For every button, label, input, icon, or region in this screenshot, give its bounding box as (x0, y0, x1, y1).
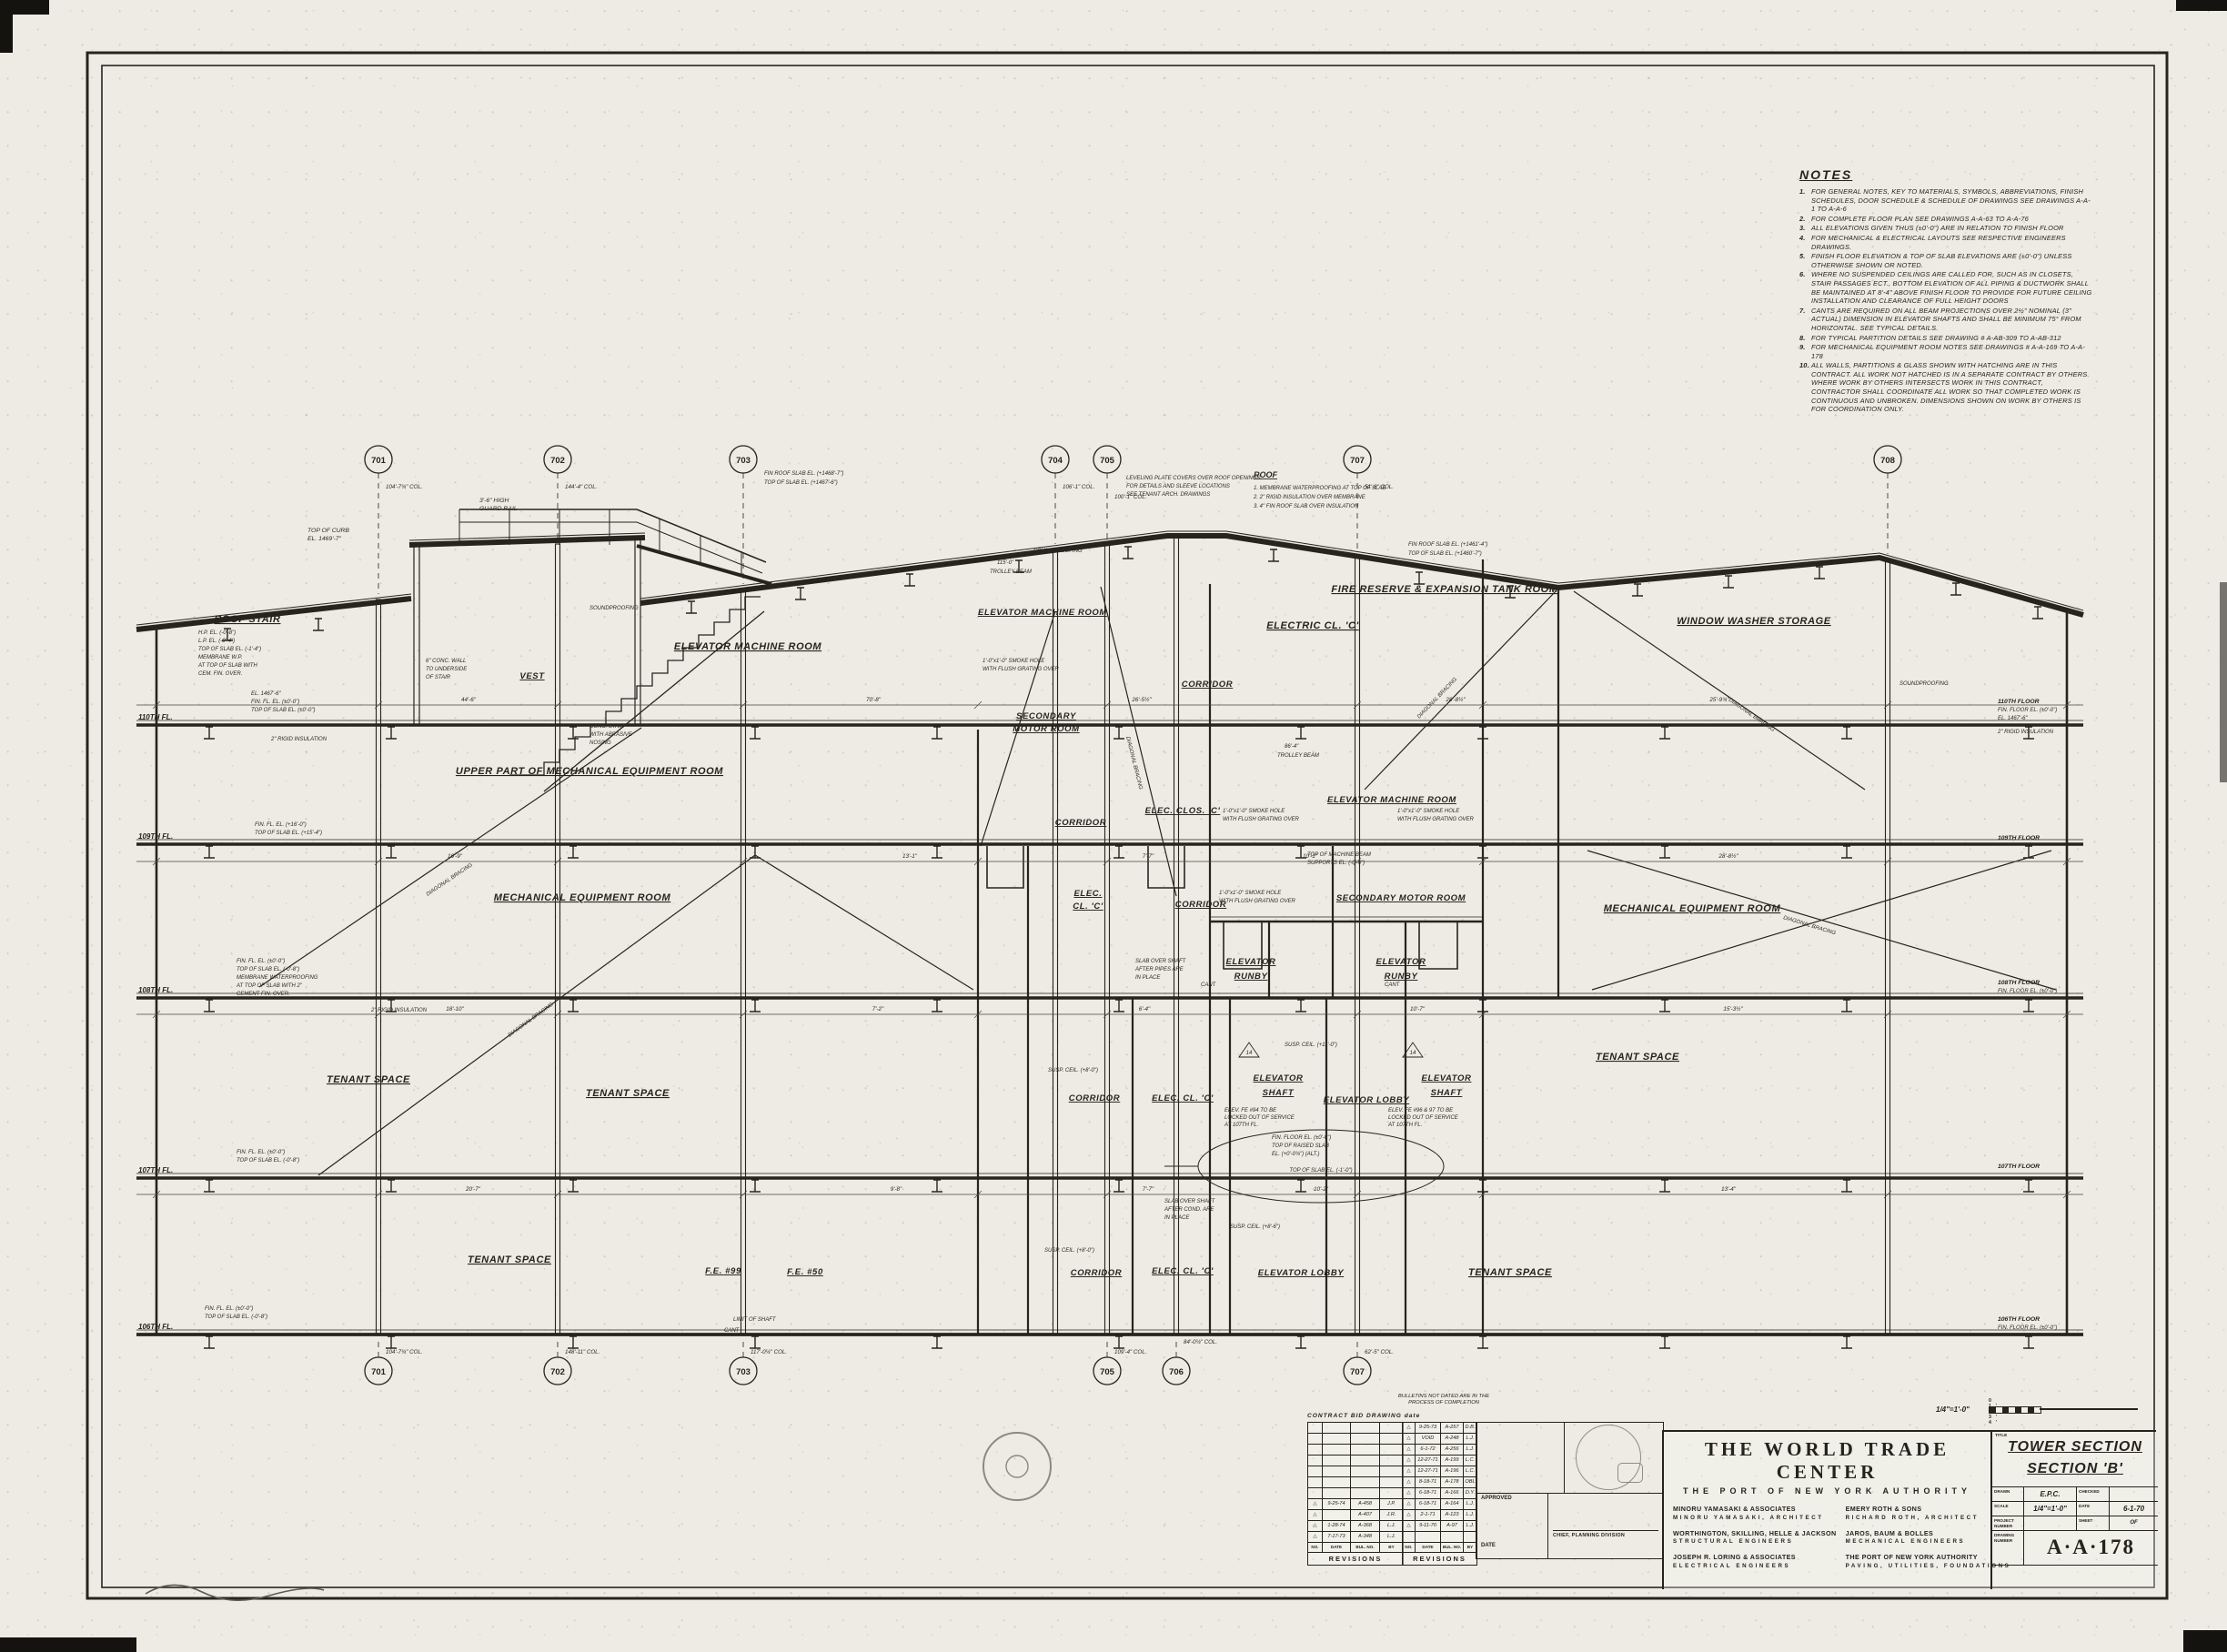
ann-curb1: TOP OF CURB (307, 528, 349, 534)
room-tenant-1: TENANT SPACE (327, 1074, 410, 1085)
ann-lock2c: AT 107TH FL. (1387, 1123, 1422, 1128)
rev-bul: A-458 (1351, 1499, 1380, 1509)
dim-c4-3: 10'-2" (1314, 1186, 1329, 1193)
dim-c2-4: 28'-8½" (1718, 852, 1738, 860)
ann-f109-tos: TOP OF SLAB EL. (+15'-4") (255, 831, 322, 836)
rev-bul: A-248 (1441, 1434, 1464, 1444)
credit-jaros: JAROS, BAUM & BOLLESMECHANICAL ENGINEERS (1846, 1529, 2011, 1546)
rev-by: L.J. (1464, 1510, 1476, 1520)
col-dim-703-bottom: 117'-0¼" COL. (751, 1349, 787, 1355)
revisions-area: BULLETINS NOT DATED ARE IN THE PROCESS O… (1307, 1383, 1662, 1588)
sheet-of-label: OF (2110, 1516, 2158, 1530)
date-value: 6-1-70 (2110, 1502, 2158, 1516)
ann-sound-1: SOUNDPROOFING (589, 606, 639, 611)
title-block-left: THE WORLD TRADE CENTER THE PORT OF NEW Y… (1664, 1432, 1990, 1589)
ann-roof-n1: 1. MEMBRANE WATERPROOFING AT TOP OF SLAB (1254, 486, 1386, 491)
grid-703-bottom: 703 (736, 1367, 751, 1377)
note-num: 2. (1799, 215, 1811, 224)
drawn-label: DRAWN (1992, 1487, 2023, 1495)
ann-smoke3a: 1'-0"x1'-0" SMOKE HOLE (1219, 891, 1282, 896)
firm-role: STRUCTURAL ENGINEERS (1673, 1538, 1837, 1545)
rev-bul: A-97 (1441, 1521, 1464, 1531)
note-item: 8.FOR TYPICAL PARTITION DETAILS SEE DRAW… (1799, 334, 2092, 343)
scale-field-label: SCALE (1992, 1502, 2023, 1509)
floor-109-left: 109TH FL. (138, 832, 173, 841)
notes-block: NOTES 1.FOR GENERAL NOTES, KEY TO MATERI… (1799, 167, 2092, 415)
dim-c1-1: 70'-8" (866, 697, 882, 703)
note-num: 9. (1799, 343, 1811, 360)
room-elec-clos: ELEC. CLOS. 'C' (1145, 806, 1221, 816)
revision-row: △A-407J.R. (1308, 1510, 1403, 1521)
rev-date: VOID (1416, 1434, 1441, 1444)
col-by: BY (1380, 1543, 1403, 1552)
title-block-right: TITLE TOWER SECTION SECTION 'B' DRAWN E.… (1990, 1432, 2158, 1589)
grid-702-bottom: 702 (550, 1367, 565, 1377)
rev-delta: △ (1308, 1499, 1323, 1509)
room-elev-machine-core: ELEVATOR MACHINE ROOM (978, 608, 1107, 618)
room-window-washer: WINDOW WASHER STORAGE (1677, 616, 1831, 627)
room-elev-machine-left: ELEVATOR MACHINE ROOM (674, 641, 822, 652)
note-text: ALL WALLS, PARTITIONS & GLASS SHOWN WITH… (1811, 361, 2092, 414)
rev-by: OBL (1464, 1477, 1476, 1487)
ann-sos1b: AFTER PIPES ARE (1134, 967, 1184, 972)
firm-role: PAVING, UTILITIES, FOUNDATIONS (1846, 1563, 2011, 1569)
ann-sos1c: IN PLACE (1135, 975, 1161, 981)
bulletins-note: BULLETINS NOT DATED ARE IN THE PROCESS O… (1344, 1394, 1544, 1406)
ann-sound-2: SOUNDPROOFING (1033, 549, 1083, 554)
title-block: THE WORLD TRADE CENTER THE PORT OF NEW Y… (1662, 1430, 2156, 1589)
firm-name: THE PORT OF NEW YORK AUTHORITY (1846, 1553, 2011, 1561)
ann-frsl2: TOP OF SLAB EL. (+1467'-6") (764, 480, 838, 486)
rev-by: L.J. (1464, 1434, 1476, 1444)
dim-c1-3: 28'-8½" (1445, 696, 1466, 703)
ann-guard1: 3'-6" HIGH (479, 498, 509, 504)
grid-705-bottom: 705 (1100, 1367, 1115, 1377)
note-text: WHERE NO SUSPENDED CEILINGS ARE CALLED F… (1811, 270, 2092, 305)
revision-row: △6-18-71A-166D.Y. (1403, 1488, 1476, 1499)
col-dim-706-bottom: 84'-0¼" COL. (1184, 1339, 1217, 1345)
room-corridor-m1: CORRIDOR (1055, 818, 1107, 828)
ann-oval: TOP OF SLAB EL. (-1'-0") (1289, 1168, 1352, 1174)
ann-f108-memb3: CEMENT FIN. OVER. (237, 992, 290, 997)
ann-frsr1: FIN ROOF SLAB EL. (+1461'-4") (1408, 542, 1487, 548)
title-label: TITLE (1995, 1434, 2007, 1438)
rev-delta: △ (1308, 1521, 1323, 1531)
ann-cant-2: CANT (1385, 982, 1401, 988)
revision-row: △9-11-70A-97L.J. (1403, 1521, 1476, 1532)
revision-row: △8-18-71A-178OBL (1403, 1477, 1476, 1488)
ann-f108-ffe: FIN. FL. EL. (±0'-0") (237, 959, 285, 964)
floor-108-right: 108TH FLOOR (1998, 980, 2040, 986)
dim-c3-1: 7'-2" (872, 1006, 884, 1012)
consultant-credits: MINORU YAMASAKI & ASSOCIATESMINORU YAMAS… (1664, 1496, 1990, 1569)
dim-c4-0: 20'-7" (465, 1186, 481, 1193)
col-no: NO. (1308, 1543, 1323, 1552)
ann-smoke2a: 1'-0"x1'-0" SMOKE HOLE (1397, 809, 1460, 814)
ann-smoke1a: 1'-0"x1'-0" SMOKE HOLE (1223, 809, 1285, 814)
ann-roof-n3: 3. 4" FIN ROOF SLAB OVER INSULATION (1254, 504, 1359, 509)
note-num: 10. (1799, 361, 1811, 414)
floor-110-left: 110TH FL. (138, 713, 173, 721)
drawing-no-label: DRAWING NUMBER (1992, 1531, 2023, 1544)
dim-c3-3: 10'-7" (1410, 1006, 1426, 1012)
rev-delta: △ (1403, 1477, 1416, 1487)
ann-smoke2b: WITH FLUSH GRATING OVER (1397, 817, 1475, 822)
room-roof-stair: ROOF STAIR (214, 614, 280, 625)
rev-delta: △ (1308, 1532, 1323, 1542)
rev-date: 1-28-74 (1323, 1521, 1351, 1531)
revision-row: △7-17-73A-348L.J. (1308, 1532, 1403, 1543)
scale-bar-icon (1989, 1406, 2041, 1414)
rev-delta: △ (1403, 1445, 1416, 1455)
rev-by: L.J. (1464, 1521, 1476, 1531)
room-tenant-2: TENANT SPACE (586, 1088, 670, 1099)
rev-bul: A-178 (1441, 1477, 1464, 1487)
rev-date: 6-18-71 (1416, 1499, 1441, 1509)
firm-name: JAROS, BAUM & BOLLES (1846, 1529, 2011, 1537)
ann-lev1: LEVELING PLATE COVERS OVER ROOF OPENINGS (1126, 476, 1260, 481)
room-elev-lobby-2: ELEVATOR LOBBY (1258, 1268, 1345, 1278)
col-dim-702-top: 144'-4" COL. (565, 484, 597, 490)
scan-artifact (2176, 0, 2227, 11)
rev-delta: △ (1403, 1456, 1416, 1466)
dim-c3-4: 15'-3½" (1723, 1005, 1743, 1012)
rev-bul: A-123 (1441, 1510, 1464, 1520)
room-elec-cl-mid: ELEC. CL. 'C' (1152, 1093, 1214, 1103)
note-num: 4. (1799, 234, 1811, 251)
ann-smoke1b: WITH FLUSH GRATING OVER (1223, 817, 1300, 822)
room-runby2-a: ELEVATOR (1376, 957, 1426, 967)
ann-lock1a: ELEV. FE #94 TO BE (1224, 1108, 1277, 1113)
ann-diag-1: DIAGONAL BRACING (426, 862, 474, 898)
grid-707-bottom: 707 (1350, 1367, 1365, 1377)
ann-smoke3b: WITH FLUSH GRATING OVER (1219, 899, 1296, 904)
grid-701-top: 701 (371, 456, 387, 466)
firm-role: RICHARD ROTH, ARCHITECT (1846, 1515, 2011, 1521)
grid-707-top: 707 (1350, 456, 1365, 466)
sheet-label: SHEET (2077, 1516, 2109, 1524)
note-item: 10.ALL WALLS, PARTITIONS & GLASS SHOWN W… (1799, 361, 2092, 414)
revisions-table-left: △9-25-74A-458J.P. △A-407J.R. △1-28-74A-3… (1307, 1422, 1404, 1566)
drawing-number: A·A·178 (2024, 1531, 2158, 1565)
rev-bul: A-348 (1351, 1532, 1380, 1542)
ann-susp8a: SUSP. CEIL. (+8'-0") (1048, 1068, 1098, 1073)
rev-bul: A-196 (1441, 1466, 1464, 1476)
ann-sos2a: SLAB OVER SHAFT (1164, 1199, 1216, 1204)
rev-bul: A-407 (1351, 1510, 1380, 1520)
ann-smoke4a: 1'-0"x1'-0" SMOKE HOLE (982, 659, 1045, 664)
room-tenant-3: TENANT SPACE (1596, 1052, 1679, 1063)
rev-bul: A-164 (1441, 1499, 1464, 1509)
ann-lock1b: LOCKED OUT OF SERVICE (1224, 1115, 1295, 1121)
room-elec-short: ELEC. (1074, 889, 1103, 899)
rev-bul: A-257 (1441, 1423, 1464, 1433)
ann-diag-2: DIAGONAL BRACING (508, 1002, 555, 1038)
rev-bul: A-199 (1441, 1456, 1464, 1466)
drawn-value: E.P.C. (2024, 1487, 2076, 1501)
note-num: 1. (1799, 187, 1811, 214)
ann-susp86: SUSP. CEIL. (+8'-6") (1230, 1224, 1280, 1230)
grid-704-top: 704 (1048, 456, 1063, 466)
note-text: FOR MECHANICAL & ELECTRICAL LAYOUTS SEE … (1811, 234, 2092, 251)
floor-level-labels: 110TH FL. 109TH FL. 108TH FL. 107TH FL. … (138, 699, 2040, 1331)
dim-c4-2: 7'-7" (1143, 1186, 1154, 1193)
ann-sos2c: IN PLACE (1164, 1215, 1190, 1221)
blueprint-sheet: { "sheet": { "drawing_id": "A\u00b7A\u00… (0, 0, 2227, 1652)
date-label: DATE (2077, 1502, 2109, 1509)
note-num: 7. (1799, 307, 1811, 333)
firm-name: JOSEPH R. LORING & ASSOCIATES (1673, 1553, 1837, 1561)
ann-curb2: EL. 1469'-7" (307, 536, 342, 542)
room-secondary-motor-mid: SECONDARY MOTOR ROOM (1336, 893, 1466, 903)
col-dim-707-bottom: 62'-5" COL. (1365, 1349, 1394, 1355)
ann-cs3: NOSING (589, 740, 611, 746)
firm-role: MECHANICAL ENGINEERS (1846, 1538, 2011, 1545)
credit-ponya: THE PORT OF NEW YORK AUTHORITYPAVING, UT… (1846, 1553, 2011, 1569)
ann-cant-3: CANT (724, 1328, 741, 1334)
rev-date: 2-1-71 (1416, 1510, 1441, 1520)
note-item: 4.FOR MECHANICAL & ELECTRICAL LAYOUTS SE… (1799, 234, 2092, 251)
ann-r110-ffe: FIN. FLOOR EL. (±0'-0") (1998, 708, 2057, 713)
room-tenant-4: TENANT SPACE (468, 1254, 551, 1265)
ann-f110-tos: TOP OF SLAB EL. (±0'-0") (251, 708, 315, 713)
room-fe99: F.E. #99 (705, 1266, 741, 1276)
credit-yamasaki: MINORU YAMASAKI & ASSOCIATESMINORU YAMAS… (1673, 1505, 1837, 1521)
chief-planning-label: CHIEF, PLANNING DIVISION (1553, 1533, 1625, 1538)
revisions-col-headers: NO.DATEBUL. NO.BY (1403, 1543, 1476, 1553)
rev-delta: △ (1403, 1466, 1416, 1476)
notes-title: NOTES (1799, 167, 2092, 182)
dim-c2-2: 7'-7" (1143, 853, 1154, 860)
room-shaft1-b: SHAFT (1263, 1088, 1295, 1098)
col-dim-705-bottom: 109'-4" COL. (1114, 1349, 1146, 1355)
ann-mach2: SUPPORTS EL. (-0'-6") (1307, 861, 1365, 866)
dim-c3-0: 18'-10" (446, 1006, 464, 1012)
room-secondary-1: SECONDARY (1016, 711, 1077, 721)
note-num: 8. (1799, 334, 1811, 343)
note-text: CANTS ARE REQUIRED ON ALL BEAM PROJECTIO… (1811, 307, 2092, 333)
project-no-label: PROJECT NUMBER (1992, 1516, 2023, 1529)
rev-by: D.B. (1464, 1423, 1476, 1433)
ann-det14-1: 14 (1246, 1051, 1253, 1056)
room-vest: VEST (519, 671, 545, 681)
ann-f109-ffe: FIN. FL. EL. (+16'-0") (255, 822, 307, 828)
room-runby1-b: RUNBY (1234, 972, 1269, 982)
room-shaft2-b: SHAFT (1431, 1088, 1463, 1098)
ann-frsr2: TOP OF SLAB EL. (+1460'-7") (1408, 551, 1482, 557)
room-elev-lobby-1: ELEVATOR LOBBY (1324, 1095, 1410, 1105)
rev-date: 12-27-71 (1416, 1456, 1441, 1466)
room-motor-room-1: MOTOR ROOM (1013, 724, 1080, 734)
rev-delta: △ (1308, 1510, 1323, 1520)
rev-date (1323, 1510, 1351, 1520)
stamp-mark-icon (1617, 1463, 1643, 1483)
firm-name: EMERY ROTH & SONS (1846, 1505, 2011, 1513)
room-corridor-m3: CORRIDOR (1069, 1093, 1121, 1103)
rev-date: 9-25-74 (1323, 1499, 1351, 1509)
floor-107-right: 107TH FLOOR (1998, 1163, 2040, 1170)
approved-label: APPROVED (1481, 1496, 1512, 1501)
col-bul: BUL. NO. (1351, 1543, 1380, 1552)
ann-diag-3: DIAGONAL BRACING (1124, 736, 1143, 791)
ann-rs3: TOP OF SLAB EL. (-1'-4") (198, 647, 261, 652)
note-item: 5.FINISH FLOOR ELEVATION & TOP OF SLAB E… (1799, 252, 2092, 269)
note-num: 5. (1799, 252, 1811, 269)
rev-bul: A-368 (1351, 1521, 1380, 1531)
ann-rigid-3: 2" RIGID INSULATION (370, 1008, 428, 1013)
ann-rs6: CEM. FIN. OVER. (198, 671, 242, 677)
checked-label: CHECKED (2077, 1487, 2109, 1495)
room-corridor-b: CORRIDOR (1071, 1268, 1123, 1278)
ann-lock1c: AT 107TH FL. (1224, 1123, 1258, 1128)
rev-date: 9-25-73 (1416, 1423, 1441, 1433)
ann-r110-el: EL. 1467'-6" (1998, 716, 2029, 721)
note-text: FINISH FLOOR ELEVATION & TOP OF SLAB ELE… (1811, 252, 2092, 269)
dim-c4-1: 9'-8" (891, 1186, 902, 1193)
ann-rsl3: EL. (+0'-0¾") (ALT.) (1272, 1152, 1319, 1157)
col-no: NO. (1403, 1543, 1416, 1552)
note-text: ALL ELEVATIONS GIVEN THUS (±0'-0") ARE I… (1811, 224, 2092, 233)
ann-susp8b: SUSP. CEIL. (+8'-0") (1044, 1248, 1094, 1254)
col-date: DATE (1323, 1543, 1351, 1552)
revision-row: △6-18-71A-164L.J. (1403, 1499, 1476, 1510)
approval-date-label: DATE (1481, 1543, 1496, 1548)
ann-rigid-1: 2" RIGID INSULATION (270, 737, 327, 742)
ann-f107-ffe: FIN. FL. EL. (±0'-0") (237, 1150, 285, 1155)
ann-trolley1-dim: 115'-0" (997, 560, 1014, 566)
project-title: THE WORLD TRADE CENTER (1664, 1438, 1990, 1484)
revision-row: △6-1-72A-256L.J. (1403, 1445, 1476, 1456)
ann-lev2: FOR DETAILS AND SLEEVE LOCATIONS (1126, 484, 1230, 489)
note-num: 3. (1799, 224, 1811, 233)
dim-c2-1: 13'-1" (902, 853, 918, 860)
revisions-col-headers: NO.DATEBUL. NO.BY (1308, 1543, 1403, 1553)
stamp-box (1564, 1423, 1663, 1494)
revision-row: △1-28-74A-368L.J. (1308, 1521, 1403, 1532)
room-mech-left: MECHANICAL EQUIPMENT ROOM (494, 892, 671, 903)
col-dim-701-bottom: 104'-7¾" COL. (386, 1349, 423, 1355)
col-dim-702-bottom: 148'-11" COL. (565, 1349, 600, 1355)
sheet-title-line1: TOWER SECTION (1992, 1439, 2158, 1456)
note-item: 1.FOR GENERAL NOTES, KEY TO MATERIALS, S… (1799, 187, 2092, 214)
annotations: 3'-6" HIGH GUARD RAIL TOP OF CURB EL. 14… (197, 470, 2057, 1334)
columns (156, 535, 2067, 1335)
scan-artifact (0, 1637, 136, 1652)
ann-trolley2: TROLLEY BEAM (1277, 753, 1319, 759)
scan-artifact (0, 0, 13, 53)
note-item: 6.WHERE NO SUSPENDED CEILINGS ARE CALLED… (1799, 270, 2092, 305)
rev-delta: △ (1403, 1434, 1416, 1444)
ann-cs2: WITH ABRASIVE (589, 732, 633, 738)
col-dim-701-top: 104'-7¾" COL. (386, 484, 423, 490)
grid-703-top: 703 (736, 456, 751, 466)
firm-role: ELECTRICAL ENGINEERS (1673, 1563, 1837, 1569)
ann-rs2: L.P. EL. (-0'-4") (198, 639, 235, 644)
rev-date: 7-17-73 (1323, 1532, 1351, 1542)
room-shaft1-a: ELEVATOR (1254, 1073, 1304, 1083)
ann-smoke4b: WITH FLUSH GRATING OVER (982, 667, 1060, 672)
rev-delta: △ (1403, 1510, 1416, 1520)
ann-rs5: AT TOP OF SLAB WITH (197, 663, 257, 669)
dim-c2-0: 16'-9" (448, 853, 463, 860)
floor-110-right: 110TH FLOOR (1998, 699, 2040, 705)
room-upper-mech: UPPER PART OF MECHANICAL EQUIPMENT ROOM (456, 766, 723, 777)
beam-stubs (204, 547, 2043, 1348)
credit-skilling: WORTHINGTON, SKILLING, HELLE & JACKSONST… (1673, 1529, 1837, 1546)
ann-rigid-2: 2" RIGID INSULATION (1997, 730, 2054, 735)
room-elec-cl-b: ELEC. CL. 'C' (1152, 1266, 1214, 1276)
dim-c1-0: 44'-6" (461, 697, 477, 703)
rev-by: J.R. (1380, 1510, 1403, 1520)
rev-delta: △ (1403, 1521, 1416, 1531)
room-shaft2-a: ELEVATOR (1422, 1073, 1472, 1083)
scan-artifact (2183, 1630, 2227, 1652)
rev-date: 12-27-71 (1416, 1466, 1441, 1476)
bulletins-line1: BULLETINS NOT DATED ARE IN THE (1398, 1394, 1489, 1399)
ann-roof-n2: 2. 2" RIGID INSULATION OVER MEMBRANE (1253, 495, 1366, 500)
approval-box: APPROVED CHIEF, PLANNING DIVISION DATE (1476, 1422, 1664, 1559)
ann-cw2: TO UNDERSIDE (426, 667, 468, 672)
rev-by: L.J. (1464, 1499, 1476, 1509)
ann-rsl2: TOP OF RAISED SLAB (1272, 1143, 1329, 1149)
scan-artifact (2220, 582, 2227, 782)
col-bul: BUL. NO. (1441, 1543, 1464, 1552)
ann-lock2a: ELEV. FE #96 & 97 TO BE (1388, 1108, 1454, 1113)
room-tenant-5: TENANT SPACE (1468, 1267, 1552, 1278)
rev-date: 9-11-70 (1416, 1521, 1441, 1531)
note-item: 2.FOR COMPLETE FLOOR PLAN SEE DRAWINGS A… (1799, 215, 2092, 224)
ann-sos2b: AFTER COND. ARE (1164, 1207, 1214, 1213)
room-electric-cl: ELECTRIC CL. 'C' (1266, 620, 1359, 631)
note-text: FOR GENERAL NOTES, KEY TO MATERIALS, SYM… (1811, 187, 2092, 214)
rev-bul: A-166 (1441, 1488, 1464, 1498)
rev-date: 8-18-71 (1416, 1477, 1441, 1487)
ann-rs1: H.P. EL. (-0'-8") (198, 630, 236, 636)
room-runby1-a: ELEVATOR (1226, 957, 1276, 967)
col-by: BY (1464, 1543, 1476, 1552)
revision-row: △12-27-71A-196L.C. (1403, 1466, 1476, 1477)
rev-delta: △ (1403, 1488, 1416, 1498)
room-corridor-upper: CORRIDOR (1182, 680, 1234, 690)
ann-f108-memb2: AT TOP OF SLAB WITH 2" (236, 983, 303, 989)
floor-106-right: 106TH FLOOR (1998, 1316, 2040, 1323)
revision-row: △9-25-73A-257D.B. (1403, 1423, 1476, 1434)
rev-by: D.Y. (1464, 1488, 1476, 1498)
room-fe50: F.E. #50 (787, 1267, 823, 1277)
revision-row: △VOIDA-248L.J. (1403, 1434, 1476, 1445)
ann-limit: LIMIT OF SHAFT (733, 1317, 777, 1323)
grid-706-bottom: 706 (1169, 1367, 1184, 1377)
grid-708-top: 708 (1880, 456, 1895, 466)
revision-row: △2-1-71A-123L.J. (1403, 1510, 1476, 1521)
credit-roth: EMERY ROTH & SONSRICHARD ROTH, ARCHITECT (1846, 1505, 2011, 1521)
ann-r108-ffe: FIN. FLOOR EL. (±0'-0") (1998, 989, 2057, 994)
ann-sound-3: SOUNDPROOFING (1899, 681, 1949, 687)
scale-value: 1/4"=1'-0" (2024, 1502, 2076, 1516)
ann-f110-el: EL. 1467'-6" (251, 691, 282, 697)
floor-109-right: 109TH FLOOR (1998, 835, 2040, 841)
ann-f106-tos: TOP OF SLAB EL. (-0'-8") (205, 1315, 267, 1320)
ann-cant-1: CANT (1201, 982, 1217, 988)
rev-by: L.C. (1464, 1456, 1476, 1466)
sheet-title-line2: SECTION 'B' (1992, 1461, 2158, 1477)
ann-susp11: SUSP. CEIL. (+11'-0") (1285, 1043, 1337, 1048)
client-name: THE PORT OF NEW YORK AUTHORITY (1664, 1486, 1990, 1496)
note-item: 7.CANTS ARE REQUIRED ON ALL BEAM PROJECT… (1799, 307, 2092, 333)
bulletins-line2: PROCESS OF COMPLETION (1408, 1400, 1479, 1405)
room-cl-c: CL. 'C' (1073, 902, 1103, 912)
ann-guard2: GUARD RAIL (479, 506, 518, 512)
